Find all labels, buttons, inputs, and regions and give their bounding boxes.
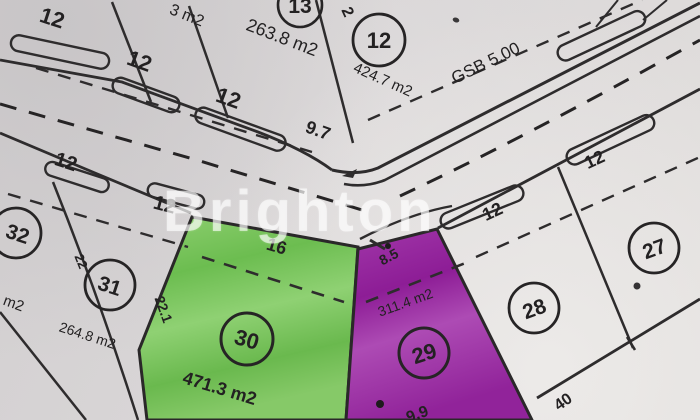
gsb-line-top-left <box>36 68 312 152</box>
lot-number-27: 27 <box>629 223 679 273</box>
area-label-partial-top: 3 m2 <box>167 1 206 30</box>
lot-divider-28-27 <box>558 167 633 348</box>
dim-right-frontage-1: 12 <box>479 198 506 225</box>
road-edge-right-inner-2 <box>344 16 700 185</box>
curb-segments <box>9 8 656 230</box>
dim-rear-40: 40 <box>551 390 575 414</box>
dim-lot-31-depth: 22 <box>72 252 91 271</box>
dim-top-frontage-2: 12 <box>124 45 156 77</box>
lot-divider-topright-1 <box>596 0 618 27</box>
lot-12-number: 12 <box>367 28 391 53</box>
area-label-lot-31: 264.8 m2 <box>57 319 118 352</box>
area-label-partial-lot-32: m2 <box>1 292 26 315</box>
lot-27-number: 27 <box>640 235 670 265</box>
area-label-lot-13: 263.8 m2 <box>244 15 321 61</box>
lot-divider-32-31 <box>53 182 138 420</box>
lot-number-32: 32 <box>0 208 41 258</box>
lot-28-number: 28 <box>520 294 550 324</box>
cadastral-map: 13 12 32 31 30 29 28 27 <box>0 0 700 420</box>
road-centerline-right <box>400 40 700 196</box>
lot-29-purple-highlight <box>346 229 532 420</box>
lot-32-number: 32 <box>3 220 32 249</box>
gsb-annotation: GSB 5.00 <box>448 38 523 87</box>
dim-left-frontage-2: 12 <box>151 192 178 219</box>
lot-number-28: 28 <box>509 283 559 333</box>
plot-map-photo: 13 12 32 31 30 29 28 27 <box>0 0 700 420</box>
lot-divider-topright-2 <box>643 0 667 20</box>
dim-left-frontage-1: 12 <box>52 148 80 176</box>
lot-31-number: 31 <box>95 272 125 301</box>
lot-number-13: 13 <box>278 0 322 27</box>
dim-corner-9-7: 9.7 <box>303 117 333 144</box>
dim-lot-13-side: 2 <box>337 4 356 19</box>
lot-13-number: 13 <box>288 0 311 18</box>
lot-number-12: 12 <box>353 14 405 66</box>
dim-top-frontage-1: 12 <box>37 2 68 33</box>
